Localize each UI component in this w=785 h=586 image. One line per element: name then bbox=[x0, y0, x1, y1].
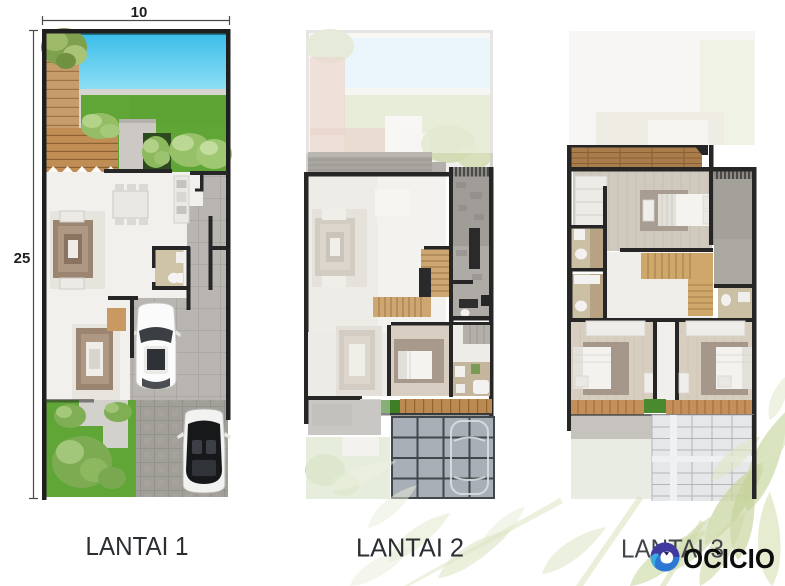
svg-text:LANTAI 2: LANTAI 2 bbox=[356, 533, 464, 563]
svg-text:OCICIO: OCICIO bbox=[683, 543, 775, 574]
svg-text:LANTAI 1: LANTAI 1 bbox=[86, 531, 189, 561]
svg-text:25: 25 bbox=[14, 250, 31, 267]
svg-text:10: 10 bbox=[131, 4, 148, 21]
